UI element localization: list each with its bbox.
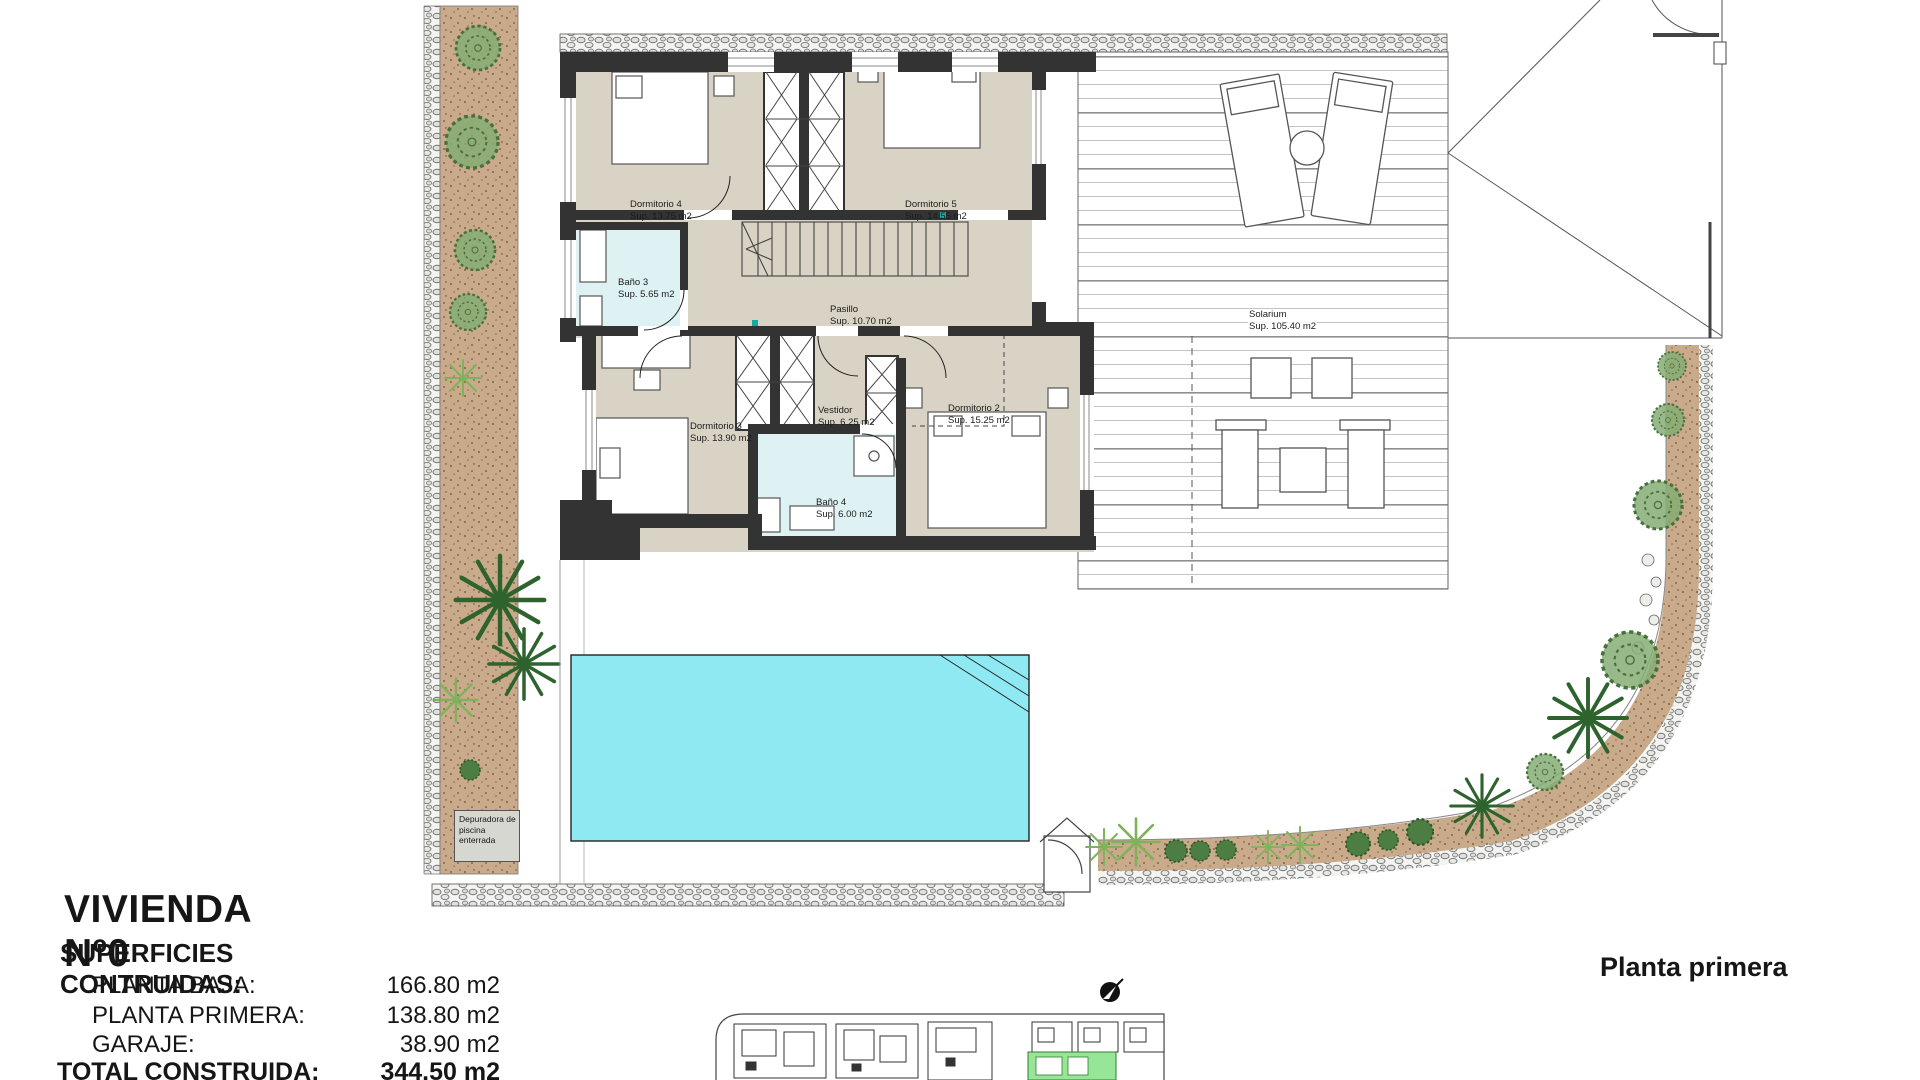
deck-side-table xyxy=(1290,131,1324,165)
room-label-vestidor: VestidorSup. 6.25 m2 xyxy=(818,382,875,440)
surface-total-row: TOTAL CONSTRUIDA:344.50 m2 xyxy=(57,1058,500,1080)
room-label-dormitorio4: Dormitorio 4Sup. 13.75 m2 xyxy=(630,176,692,234)
floor-name-label: Planta primera xyxy=(1600,952,1830,983)
surface-row: PLANTA BAJA:166.80 m2 xyxy=(92,972,500,1000)
mini-site-plan xyxy=(716,1014,1164,1080)
room-label-bano4: Baño 4Sup. 6.00 m2 xyxy=(816,474,873,532)
surface-row: PLANTA PRIMERA:138.80 m2 xyxy=(92,1002,500,1030)
room-label-pasillo: PasilloSup. 10.70 m2 xyxy=(830,281,892,339)
north-arrow-icon xyxy=(1100,979,1123,1002)
neighbour-plot xyxy=(1448,0,1726,338)
plan-drawing xyxy=(0,0,1920,1080)
room-label-solarium: SolariumSup. 105.40 m2 xyxy=(1248,286,1317,344)
room-label-dormitorio3: Dormitorio 3Sup. 13.90 m2 xyxy=(690,398,752,456)
pool-equipment-note: Depuradora de piscina enterrada xyxy=(454,810,520,862)
pool xyxy=(571,655,1029,841)
room-label-bano3: Baño 3Sup. 5.65 m2 xyxy=(618,254,675,312)
room-label-dormitorio2: Dormitorio 2Sup. 15.25 m2 xyxy=(948,380,1010,438)
surface-row: GARAJE:38.90 m2 xyxy=(92,1031,500,1059)
highlighted-unit xyxy=(1028,1052,1116,1080)
room-label-dormitorio5: Dormitorio 5Sup. 14.55 m2 xyxy=(905,176,967,234)
floor-plan-sheet: Dormitorio 4Sup. 13.75 m2 Dormitorio 5Su… xyxy=(0,0,1920,1080)
left-garden-strip xyxy=(424,6,559,874)
entrance-gate xyxy=(1040,818,1094,892)
